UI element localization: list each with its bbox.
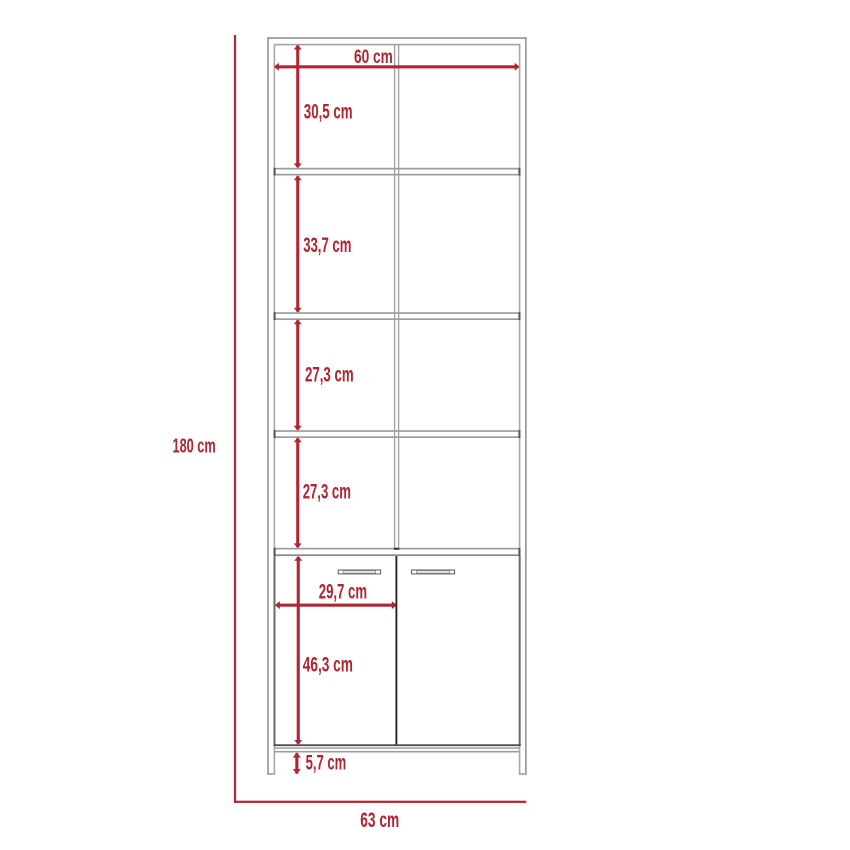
svg-text:30,5 cm: 30,5 cm [304, 100, 353, 123]
svg-text:180 cm: 180 cm [173, 434, 216, 457]
svg-text:29,7 cm: 29,7 cm [319, 581, 367, 604]
svg-text:27,3 cm: 27,3 cm [303, 481, 351, 504]
svg-text:33,7 cm: 33,7 cm [303, 234, 351, 257]
svg-text:5,7 cm: 5,7 cm [306, 752, 347, 775]
svg-text:60 cm: 60 cm [354, 46, 393, 68]
svg-text:63 cm: 63 cm [360, 809, 399, 832]
svg-text:46,3 cm: 46,3 cm [303, 654, 353, 677]
svg-text:27,3 cm: 27,3 cm [305, 363, 354, 386]
